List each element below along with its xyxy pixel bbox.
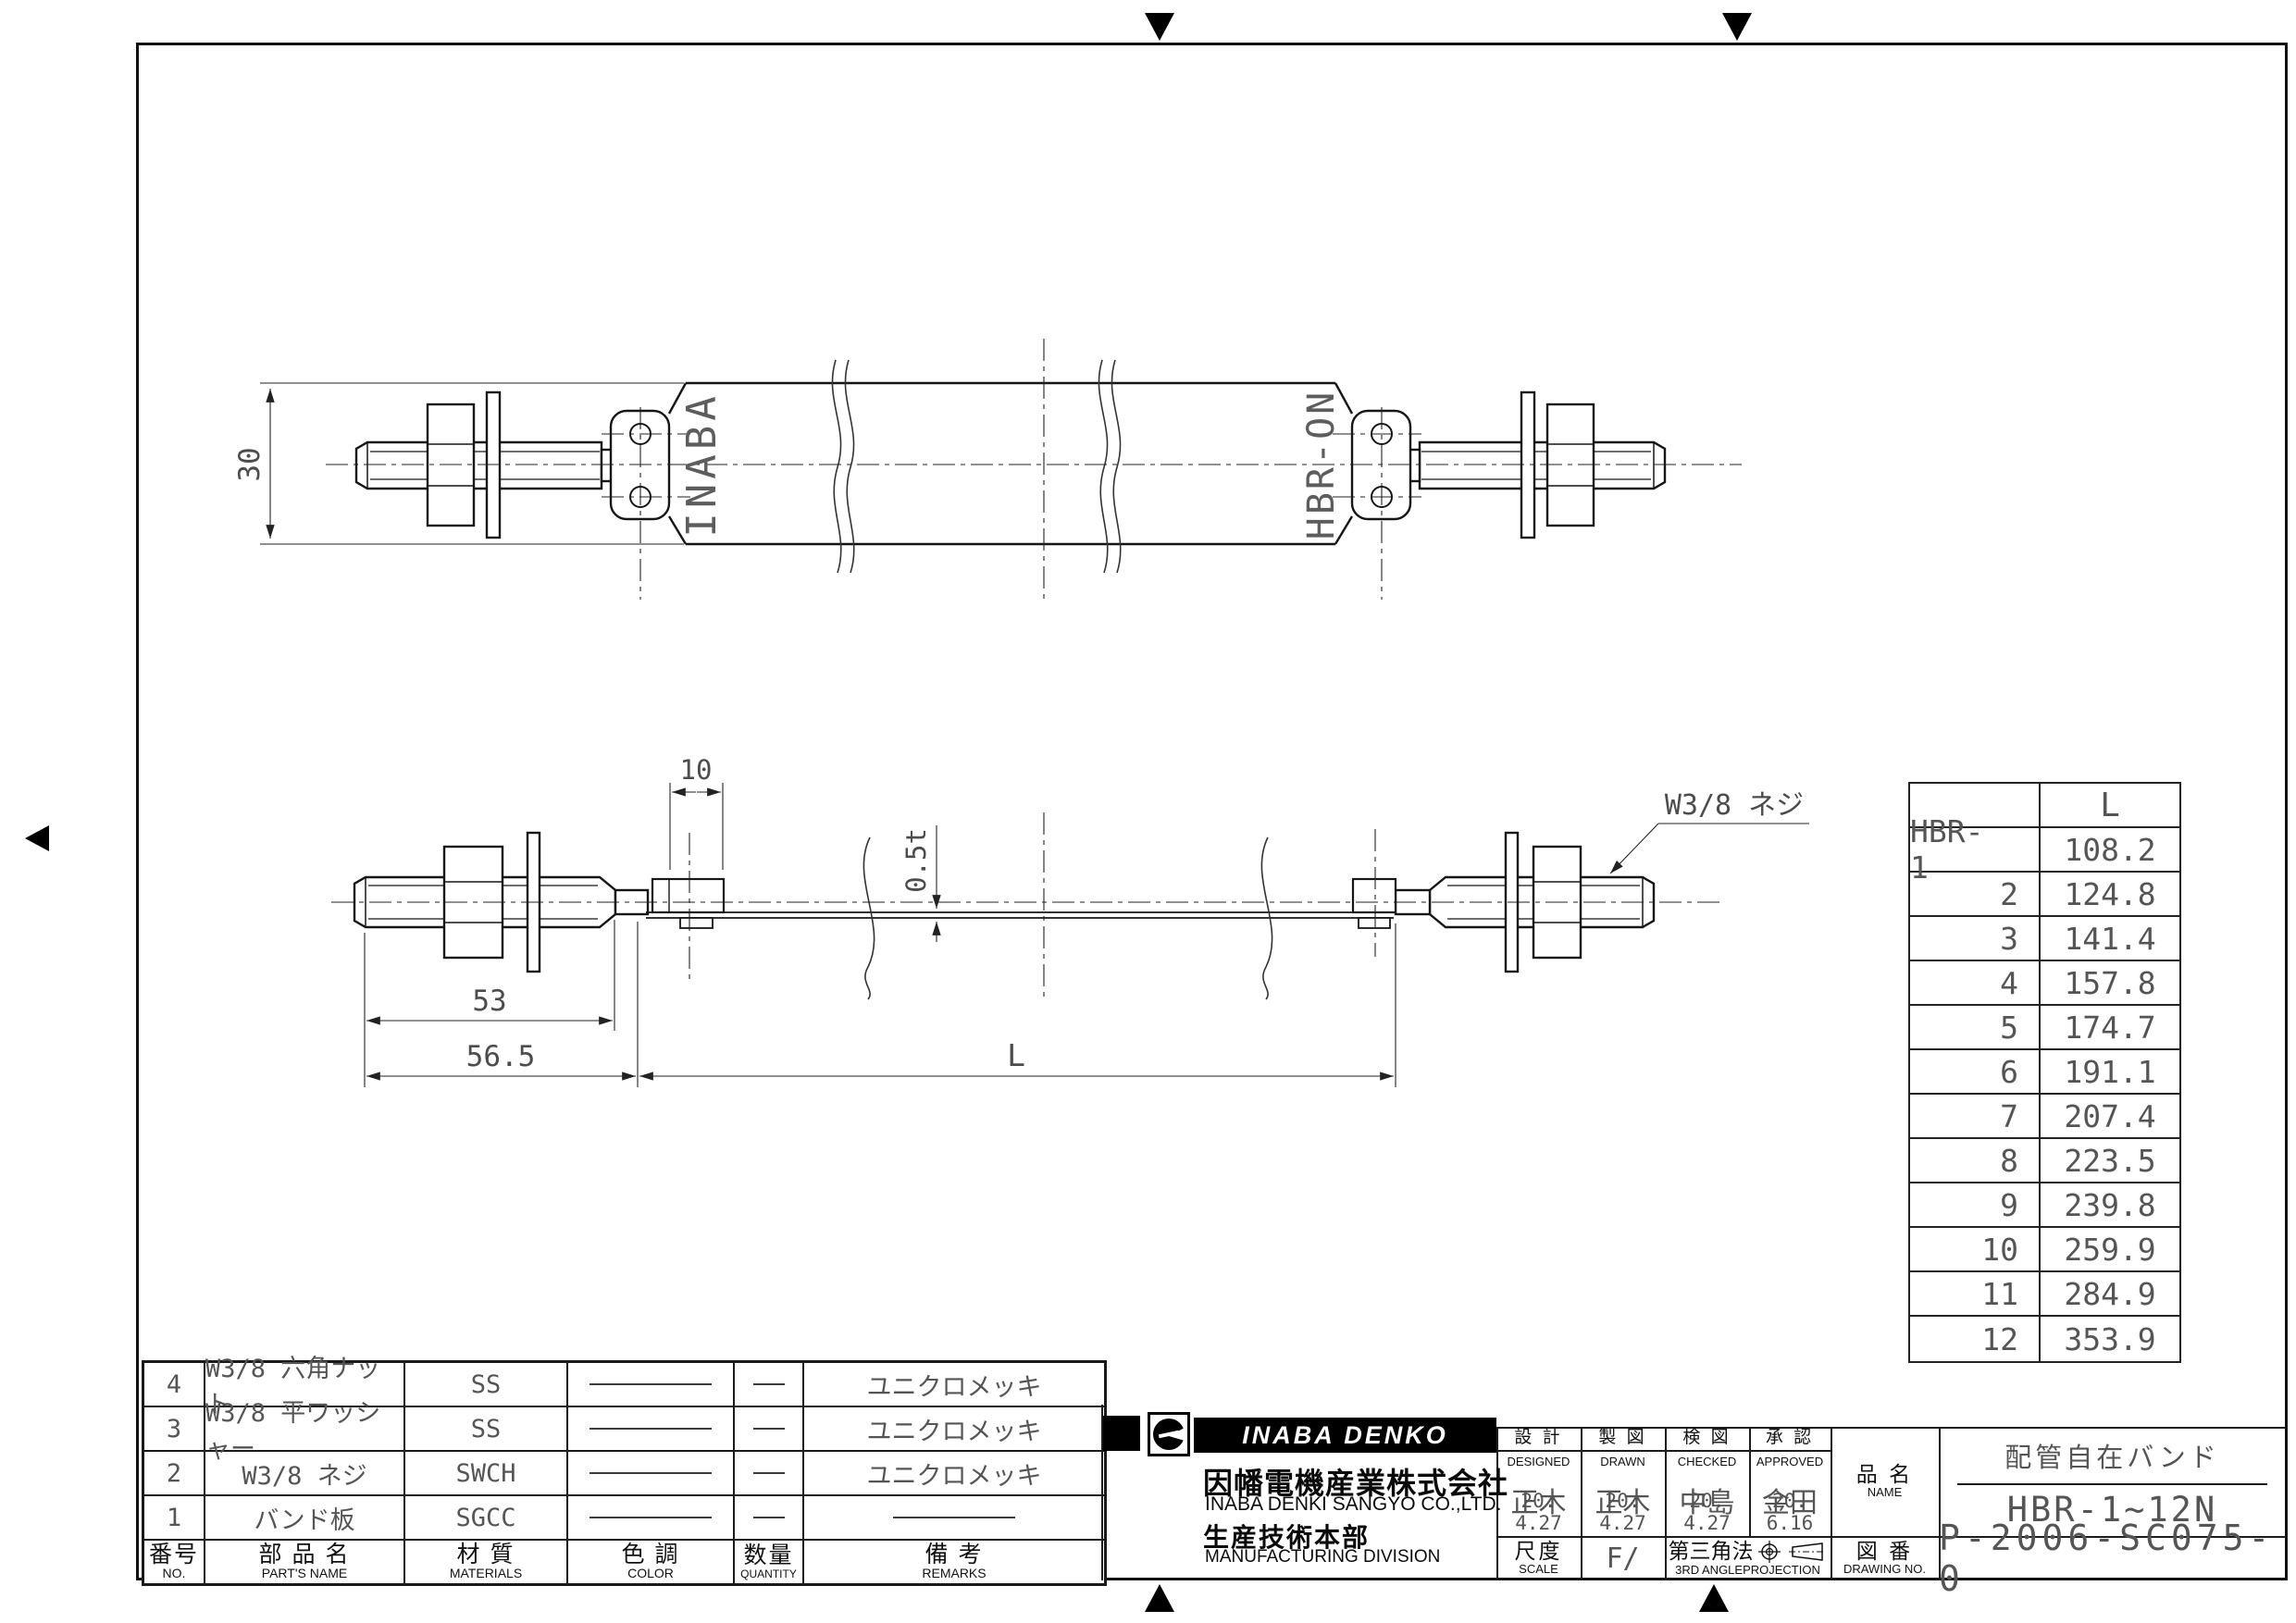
- dim-30-label: 30: [233, 447, 267, 481]
- size-row-model: 4: [1910, 961, 2041, 1006]
- part-color: [568, 1496, 735, 1541]
- size-table-header-length: L: [2041, 784, 2179, 828]
- dash-placeholder: [590, 1428, 712, 1430]
- size-row-length: 223.5: [2041, 1139, 2179, 1183]
- part-color: [568, 1363, 735, 1407]
- sig-cell-designed: 正木 20. 4.27: [1496, 1469, 1581, 1536]
- size-row-model: 2: [1910, 873, 2041, 917]
- header-jp: 色 調: [622, 1542, 680, 1567]
- sig-cell-checked: 中島 20. 4.27: [1665, 1469, 1749, 1536]
- drawing-number-cell: P-2006-SC075-0: [1939, 1536, 2286, 1580]
- part-qty: [735, 1407, 804, 1452]
- product-model: HBR-1~12N: [2007, 1490, 2217, 1530]
- band-stamp-hbr-on: HBR-ON: [1300, 390, 1343, 540]
- part-no: 2: [144, 1452, 205, 1496]
- header-jp: 備 考: [925, 1542, 984, 1567]
- dwg-label-jp: 図 番: [1856, 1540, 1913, 1563]
- name-label-en: NAME: [1868, 1486, 1903, 1500]
- size-row-model: 7: [1910, 1095, 2041, 1139]
- size-row-model: 12: [1910, 1317, 2041, 1361]
- product-name-cell: 配管自在バンド: [1939, 1427, 2286, 1483]
- dim-56-5-label: 56.5: [466, 1040, 536, 1073]
- brand-banner: INABA DENKO: [1194, 1418, 1496, 1453]
- bottom-view: 10 0.5t 53 56.5: [331, 754, 1809, 1087]
- inaba-logo: [1148, 1412, 1190, 1456]
- sig-label-en: DESIGNED: [1508, 1456, 1570, 1469]
- size-row-length: 174.7: [2041, 1006, 2179, 1050]
- part-name: W3/8 ネジ: [205, 1452, 405, 1496]
- part-remarks: ユニクロメッキ: [804, 1452, 1104, 1496]
- size-table: L HBR- 1 108.2 2 124.8 3 141.4 4 157.8 5…: [1908, 782, 2181, 1363]
- part-qty: [735, 1363, 804, 1407]
- scale-label-cell: 尺度 SCALE: [1496, 1536, 1581, 1580]
- part-no: 1: [144, 1496, 205, 1541]
- parts-header-qty: 数量 QUANTITY: [735, 1541, 804, 1583]
- scale-value-cell: F/: [1581, 1536, 1665, 1580]
- size-row-model: 5: [1910, 1006, 2041, 1050]
- dash-placeholder: [590, 1383, 712, 1385]
- dim-53-label: 53: [472, 985, 506, 1018]
- size-row-model: 9: [1910, 1183, 2041, 1228]
- dash-placeholder: [753, 1472, 785, 1474]
- drawing-sheet: 30 INABA HBR-ON: [0, 0, 2296, 1623]
- dash-placeholder: [893, 1517, 1015, 1518]
- size-row-model: 6: [1910, 1050, 2041, 1095]
- size-row-length: 259.9: [2041, 1228, 2179, 1272]
- thread-label: W3/8 ネジ: [1665, 789, 1804, 822]
- size-row-length: 124.8: [2041, 873, 2179, 917]
- dim-L-label: L: [1007, 1037, 1025, 1073]
- projection-label-en: 3RD ANGLEPROJECTION: [1675, 1564, 1820, 1578]
- dim-10-label: 10: [680, 754, 713, 786]
- dash-placeholder: [590, 1472, 712, 1474]
- top-view: 30 INABA HBR-ON: [233, 339, 1742, 601]
- header-en: MATERIALS: [450, 1567, 522, 1580]
- part-no: 4: [144, 1363, 205, 1407]
- title-block-black-mark: [1103, 1416, 1140, 1451]
- product-name-label-cell: 品 名 NAME: [1831, 1427, 1939, 1536]
- sig-header-en: DRAWN: [1581, 1429, 1665, 1469]
- header-en: COLOR: [627, 1567, 674, 1580]
- header-en: QUANTITY: [740, 1568, 797, 1580]
- size-row-length: 157.8: [2041, 961, 2179, 1006]
- sig-label-en: CHECKED: [1678, 1456, 1737, 1469]
- part-material: SWCH: [405, 1452, 568, 1496]
- parts-header-no: 番号 NO.: [144, 1541, 205, 1583]
- sig-cell-approved: 金田 20. 6.16: [1749, 1469, 1831, 1536]
- break-lines-top-view: [832, 360, 1120, 573]
- name-label-jp: 品 名: [1856, 1463, 1913, 1486]
- dwg-label-en: DRAWING NO.: [1843, 1563, 1926, 1577]
- scale-label-jp: 尺度: [1515, 1540, 1563, 1563]
- sig-date: 20. 4.27: [1581, 1490, 1665, 1534]
- dwg-label-cell: 図 番 DRAWING NO.: [1831, 1536, 1939, 1580]
- size-row-length: 207.4: [2041, 1095, 2179, 1139]
- dash-placeholder: [590, 1517, 712, 1518]
- sig-label-en: APPROVED: [1756, 1456, 1823, 1469]
- scale-value: F/: [1606, 1542, 1639, 1575]
- size-row-model: HBR- 1: [1910, 828, 2041, 873]
- part-remarks: ユニクロメッキ: [804, 1363, 1104, 1407]
- parts-header-name: 部 品 名 PART'S NAME: [205, 1541, 405, 1583]
- part-color: [568, 1452, 735, 1496]
- header-jp: 部 品 名: [259, 1542, 351, 1567]
- header-jp: 材 質: [457, 1542, 515, 1567]
- header-jp: 数量: [743, 1543, 793, 1567]
- size-row-model: 11: [1910, 1272, 2041, 1317]
- dim-10: [670, 783, 723, 870]
- product-model-cell: HBR-1~12N: [1939, 1483, 2286, 1536]
- parts-list-table: 4 W3/8 六角ナット SS ユニクロメッキ 3 W3/8 平ワッシャー SS…: [142, 1360, 1107, 1586]
- sig-cell-drawn: 正木 20. 4.27: [1581, 1469, 1665, 1536]
- part-name: バンド板: [205, 1496, 405, 1541]
- projection-label-jp: 第三角法: [1669, 1540, 1754, 1563]
- sig-label-en: DRAWN: [1600, 1456, 1645, 1469]
- parts-header-remarks: 備 考 REMARKS: [804, 1541, 1104, 1583]
- part-material: SGCC: [405, 1496, 568, 1541]
- dash-placeholder: [753, 1517, 785, 1518]
- part-remarks: ユニクロメッキ: [804, 1407, 1104, 1452]
- part-material: SS: [405, 1363, 568, 1407]
- header-en: NO.: [163, 1567, 186, 1580]
- size-row-length: 239.8: [2041, 1183, 2179, 1228]
- size-row-model: 10: [1910, 1228, 2041, 1272]
- product-name: 配管自在バンド: [2004, 1436, 2219, 1475]
- header-en: PART'S NAME: [262, 1567, 347, 1580]
- division-name-en: MANUFACTURING DIVISION: [1205, 1547, 1440, 1567]
- band-stamp-inaba: INABA: [678, 391, 726, 537]
- scale-label-en: SCALE: [1519, 1563, 1558, 1577]
- part-qty: [735, 1496, 804, 1541]
- company-name-en: INABA DENKI SANGYO CO.,LTD.: [1205, 1493, 1502, 1516]
- thread-leader: [1610, 824, 1809, 873]
- part-qty: [735, 1452, 804, 1496]
- dash-placeholder: [753, 1383, 785, 1385]
- part-no: 3: [144, 1407, 205, 1452]
- third-angle-symbol: [1757, 1540, 1828, 1564]
- part-color: [568, 1407, 735, 1452]
- sig-date: 20. 4.27: [1496, 1490, 1581, 1534]
- brand-name: INABA DENKO: [1242, 1421, 1448, 1450]
- size-row-model: 8: [1910, 1139, 2041, 1183]
- size-row-length: 191.1: [2041, 1050, 2179, 1095]
- sig-date: 20. 6.16: [1749, 1490, 1831, 1534]
- size-row-length: 284.9: [2041, 1272, 2179, 1317]
- size-row-length: 353.9: [2041, 1317, 2179, 1361]
- dim-thickness-label: 0.5t: [900, 828, 932, 893]
- header-en: REMARKS: [922, 1567, 986, 1580]
- sig-header-en: APPROVED: [1749, 1429, 1831, 1469]
- parts-header-color: 色 調 COLOR: [568, 1541, 735, 1583]
- sig-header-en: CHECKED: [1665, 1429, 1749, 1469]
- parts-header-material: 材 質 MATERIALS: [405, 1541, 568, 1583]
- dash-placeholder: [753, 1428, 785, 1430]
- sig-date: 20. 4.27: [1665, 1490, 1749, 1534]
- size-row-model: 3: [1910, 917, 2041, 961]
- projection-cell: 第三角法 3RD ANGLEPROJECTION: [1665, 1536, 1831, 1580]
- part-material: SS: [405, 1407, 568, 1452]
- inaba-logo-glyph: [1151, 1417, 1186, 1452]
- size-row-length: 141.4: [2041, 917, 2179, 961]
- header-jp: 番号: [149, 1542, 199, 1567]
- size-row-length: 108.2: [2041, 828, 2179, 873]
- part-name: W3/8 平ワッシャー: [205, 1407, 405, 1452]
- part-remarks: [804, 1496, 1104, 1541]
- sig-header-en: DESIGNED: [1496, 1429, 1581, 1469]
